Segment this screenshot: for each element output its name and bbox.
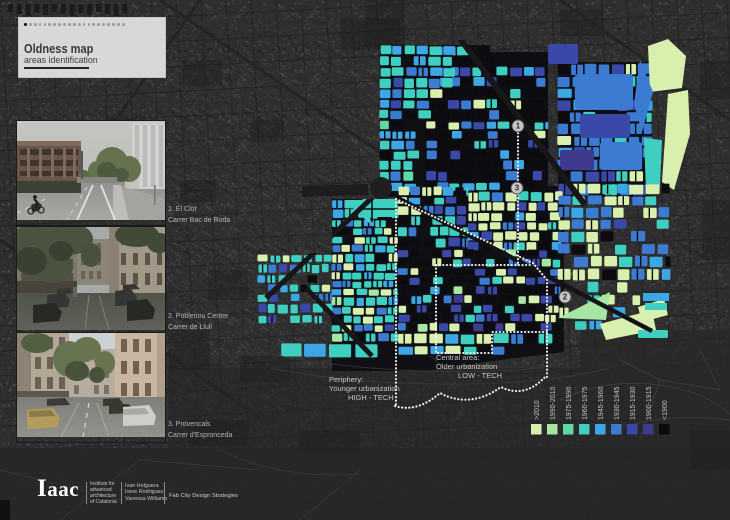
svg-text:Younger urbanization: Younger urbanization <box>329 384 400 393</box>
svg-text:HIGH - TECH: HIGH - TECH <box>348 393 394 402</box>
svg-text:1975-1990: 1975-1990 <box>566 386 573 420</box>
svg-text:1915-1930: 1915-1930 <box>630 386 637 420</box>
svg-text:1900-1915: 1900-1915 <box>646 386 653 420</box>
svg-text:<1900: <1900 <box>662 400 669 420</box>
svg-text:LOW - TECH: LOW - TECH <box>458 371 502 380</box>
svg-text:1: 1 <box>516 122 521 131</box>
svg-text:2: 2 <box>563 293 568 302</box>
svg-text:>2010: >2010 <box>534 400 541 420</box>
svg-text:3: 3 <box>515 184 520 193</box>
svg-text:1990-2010: 1990-2010 <box>550 386 557 420</box>
svg-text:Periphery:: Periphery: <box>329 375 363 384</box>
svg-text:1960-1975: 1960-1975 <box>582 386 589 420</box>
svg-text:Older urbanization: Older urbanization <box>436 362 497 371</box>
svg-text:Central area:: Central area: <box>436 353 479 362</box>
svg-text:1945-1960: 1945-1960 <box>598 386 605 420</box>
svg-text:1930-1945: 1930-1945 <box>614 386 621 420</box>
